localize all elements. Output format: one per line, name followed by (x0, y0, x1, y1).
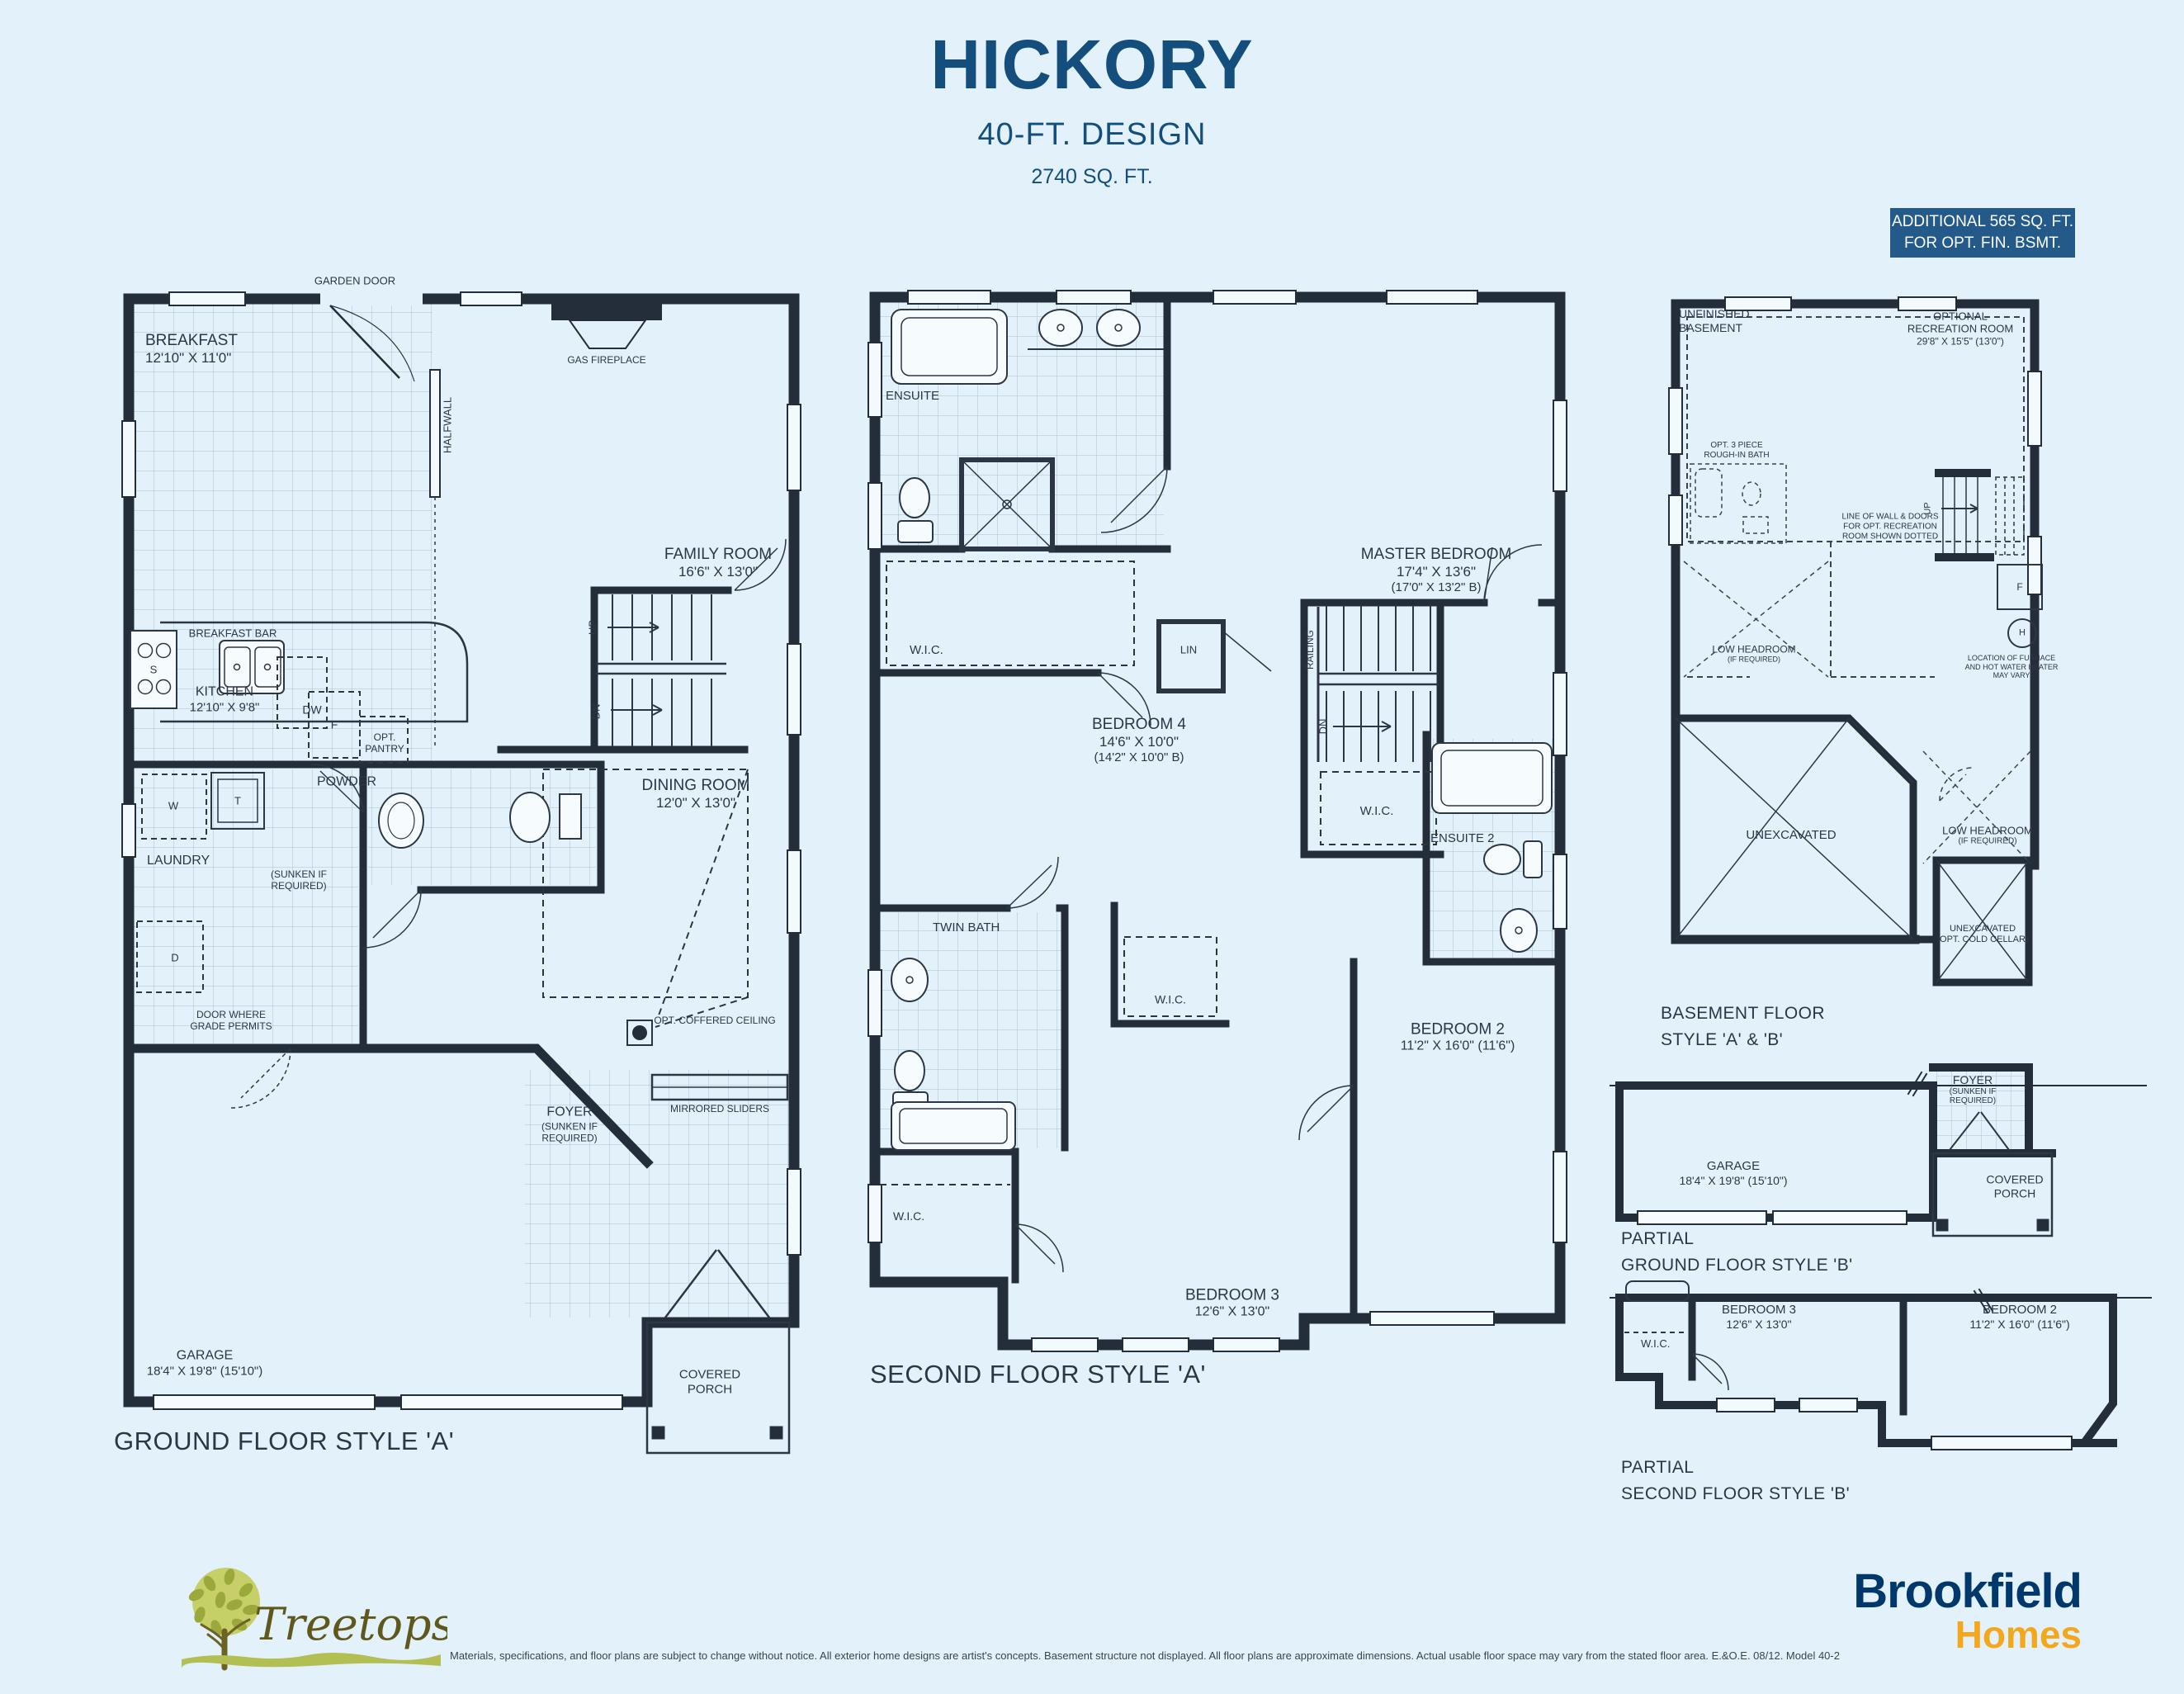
breakfast-bar-label: BREAKFAST BAR (189, 627, 277, 639)
up-label: UP (1923, 502, 1934, 514)
tub-label: T (234, 794, 241, 807)
floorplan-sheet: HICKORY 40-FT. DESIGN 2740 SQ. FT. ADDIT… (0, 0, 2184, 1694)
text-line: (SUNKEN IF (1950, 1086, 1997, 1096)
bedroom4-label: BEDROOM 4 14'6" X 10'0" (14'2" X 10'0" B… (1092, 716, 1186, 765)
room-dims: 12'10" X 9'8" (190, 701, 260, 716)
ground-floor-drawing (74, 272, 900, 1486)
text-line: OPT. 3 PIECE (1704, 441, 1769, 451)
rough-in-bath (1690, 464, 1786, 543)
porch-post-icon (770, 1427, 782, 1439)
page-sqft: 2740 SQ. FT. (0, 165, 2184, 189)
garage-label: GARAGE 18'4" X 19'8" (15'10") (147, 1349, 263, 1379)
ensuite-label: ENSUITE (886, 389, 939, 404)
brookfield-logo: Brookfield Homes (1853, 1567, 2082, 1654)
text-line: STYLE 'A' & 'B' (1661, 1027, 1825, 1053)
laundry-label: LAUNDRY (147, 854, 210, 869)
railing-label: RAILING (1304, 630, 1316, 670)
text-line: DOOR WHERE (190, 1009, 272, 1020)
text-line: AND HOT WATER HEATER (1965, 663, 2059, 672)
twin-bath-label: TWIN BATH (933, 920, 1000, 935)
sink-icon (1039, 310, 1082, 346)
ensuite2-label: ENSUITE 2 (1430, 831, 1495, 846)
room-name: BEDROOM 2 (1401, 1020, 1515, 1039)
low-headroom-label: LOW HEADROOM (IF REQUIRED) (1712, 644, 1795, 665)
garage-doors (1638, 1211, 1907, 1224)
fridge-label: F (331, 718, 338, 732)
master-closet-label: W.I.C. (1360, 804, 1394, 819)
breakfast-label: BREAKFAST 12'10" X 11'0" (145, 332, 238, 367)
text-line: BASEMENT FLOOR (1661, 1001, 1825, 1027)
cooktop-label: S (150, 663, 158, 675)
toilet-icon (510, 793, 550, 842)
treetops-logo: Treetops (175, 1559, 447, 1682)
door-arcs (1007, 466, 1354, 1272)
low-headroom-zones (1684, 561, 2030, 864)
covered-porch-label: COVERED PORCH (679, 1367, 740, 1396)
page-title: HICKORY (0, 25, 2184, 105)
low-headroom2-label: LOW HEADROOM (IF REQUIRED) (1942, 824, 2033, 846)
ground-floor-title: GROUND FLOOR STYLE 'A' (114, 1427, 454, 1457)
text-line: REQUIRED) (271, 880, 327, 892)
partial-second-floor-plan: W.I.C. BEDROOM 3 12'6" X 13'0" BEDROOM 2… (1610, 1280, 2154, 1519)
text-line: COVERED (679, 1367, 740, 1382)
room-dims: 12'0" X 13'0" (642, 795, 750, 812)
room-name: BEDROOM 3 (1185, 1286, 1279, 1304)
text-line: (IF REQUIRED) (1942, 837, 2033, 847)
walls (1610, 1067, 2146, 1218)
bed2-wic-label: W.I.C. (1155, 993, 1186, 1007)
treetops-wordmark: Treetops (254, 1598, 447, 1650)
unfinished-basement-label: UNFINISHED BASEMENT (1679, 307, 1750, 334)
text-line: (SUNKEN IF (541, 1120, 598, 1132)
room-dims: 17'4" X 13'6" (1361, 564, 1512, 580)
toilet-icon (1484, 845, 1520, 874)
tub-icon (1432, 743, 1552, 813)
covered-porch-label: COVERED PORCH (1986, 1172, 2043, 1200)
room-name: GARAGE (147, 1349, 263, 1365)
second-floor-title: SECOND FLOOR STYLE 'A' (870, 1360, 1206, 1390)
dining-room-label: DINING ROOM 12'0" X 13'0" (642, 777, 750, 812)
washer-label: W (168, 799, 178, 812)
tub-icon (891, 310, 1007, 384)
family-room-label: FAMILY ROOM 16'6" X 13'0" (664, 546, 772, 580)
basement-floor-plan: UNFINISHED BASEMENT OPTIONAL RECREATION … (1651, 289, 2130, 1065)
room-name: BEDROOM 3 (1722, 1303, 1796, 1318)
partial-second-title: PARTIAL SECOND FLOOR STYLE 'B' (1621, 1455, 1850, 1507)
sink-icon (1097, 310, 1140, 346)
optional-rec-room-label: OPTIONAL RECREATION ROOM 29'8" X 15'5" (… (1907, 310, 2013, 348)
text-line: REQUIRED) (1950, 1096, 1997, 1106)
room-name: FAMILY ROOM (664, 546, 772, 564)
laundry-sunken-label: (SUNKEN IF REQUIRED) (271, 868, 327, 892)
badge-line2: FOR OPT. FIN. BSMT. (1904, 233, 2061, 254)
text-line: OPTIONAL (1907, 310, 2013, 323)
text-line: PORCH (679, 1382, 740, 1397)
text-line: SECOND FLOOR STYLE 'B' (1621, 1481, 1850, 1507)
second-floor-drawing (858, 277, 1585, 1416)
porch-post-icon (652, 1427, 664, 1439)
text-line: 29'8" X 15'5" (13'0") (1907, 335, 2013, 347)
wic-label: W.I.C. (1641, 1337, 1670, 1350)
room-dims: 18'4" X 19'8" (15'10") (1679, 1174, 1787, 1188)
cold-cellar-label: UNEXCAVATED (OPT. COLD CELLAR) (1936, 924, 2028, 945)
text-line: GROUND FLOOR STYLE 'B' (1621, 1252, 1853, 1279)
dryer-label: D (171, 951, 178, 963)
room-dims: 12'6" X 13'0" (1185, 1305, 1279, 1321)
powder-label: POWDER (317, 775, 376, 791)
porch-post-icon (1936, 1219, 1948, 1231)
ground-floor-plan: GARDEN DOOR BREAKFAST 12'10" X 11'0" GAS… (74, 272, 900, 1486)
text-line: BASEMENT (1679, 321, 1750, 335)
bed3-wic-label: W.I.C. (893, 1209, 924, 1223)
up-label: UP (586, 620, 598, 635)
tub-icon (1695, 469, 1722, 517)
text-line: ROOM SHOWN DOTTED (1841, 532, 1938, 542)
text-line: PORCH (1986, 1186, 2043, 1200)
opt-pantry-label: OPT. PANTRY (365, 731, 404, 755)
sink-icon (1743, 517, 1768, 533)
room-dims: 16'6" X 13'0" (664, 564, 772, 580)
text-line: LOCATION OF FURNACE (1965, 654, 2059, 663)
bedroom2-label: BEDROOM 2 11'2" X 16'0" (11'6") (1969, 1303, 2069, 1331)
text-line: MAY VARY (1965, 671, 2059, 680)
room-dims: 14'6" X 10'0" (1092, 734, 1186, 750)
furnace-note-label: LOCATION OF FURNACE AND HOT WATER HEATER… (1965, 654, 2059, 680)
room-name: KITCHEN (190, 685, 260, 701)
coffered-label: OPT. COFFERED CEILING (654, 1015, 775, 1026)
room-name: GARAGE (1679, 1159, 1787, 1174)
text-line: PARTIAL (1621, 1455, 1850, 1481)
text-line: FOYER (1950, 1073, 1997, 1087)
text-line: FOR OPT. RECREATION (1841, 522, 1938, 532)
room-name: BEDROOM 4 (1092, 716, 1186, 734)
text-line: (SUNKEN IF (271, 868, 327, 880)
second-floor-plan: ENSUITE W.I.C. LIN MASTER BEDROOM 17'4" … (858, 277, 1585, 1416)
text-line: LOW HEADROOM (1942, 824, 2033, 836)
linen-closet (1159, 622, 1223, 691)
unexcavated-label: UNEXCAVATED (1746, 828, 1836, 843)
linen-label: LIN (1180, 643, 1197, 655)
dishwasher-label: DW (302, 703, 321, 717)
bedroom3-label: BEDROOM 3 12'6" X 13'0" (1722, 1303, 1796, 1331)
room-name: MASTER BEDROOM (1361, 546, 1512, 564)
room-dims: 11'2" X 16'0" (11'6") (1969, 1318, 2069, 1332)
text-line: UNFINISHED (1679, 307, 1750, 321)
room-dims: 12'10" X 11'0" (145, 350, 238, 367)
text-line: COVERED (1986, 1172, 2043, 1186)
treetops-logo-drawing: Treetops (175, 1559, 447, 1682)
partial-ground-floor-plan: FOYER (SUNKEN IF REQUIRED) GARAGE 18'4" … (1610, 1061, 2154, 1284)
gas-fireplace-label: GAS FIREPLACE (567, 354, 645, 366)
text-line: UNEXCAVATED (1936, 924, 2028, 935)
foyer-label: FOYER (SUNKEN IF REQUIRED) (541, 1105, 598, 1143)
text-line: (OPT. COLD CELLAR) (1936, 935, 2028, 945)
garden-door-label: GARDEN DOOR (314, 274, 395, 286)
gas-fireplace-icon (551, 294, 662, 348)
disclaimer-text: Materials, specifications, and floor pla… (450, 1649, 1997, 1662)
room-name: BEDROOM 2 (1969, 1303, 2069, 1318)
bedroom3-label: BEDROOM 3 12'6" X 13'0" (1185, 1286, 1279, 1320)
porch-post-icon (2037, 1219, 2049, 1231)
sink-icon (1501, 909, 1537, 952)
tree-icon (187, 1568, 260, 1668)
basement-title: BASEMENT FLOOR STYLE 'A' & 'B' (1661, 1001, 1825, 1053)
room-dims-alt: (17'0" X 13'2" B) (1361, 580, 1512, 595)
brookfield-wordmark: Brookfield (1853, 1567, 2082, 1616)
text-line: PANTRY (365, 743, 404, 755)
rough-in-bath-label: OPT. 3 PIECE ROUGH-IN BATH (1704, 441, 1769, 461)
room-dims-alt: (14'2" X 10'0" B) (1092, 750, 1186, 765)
text-line: RECREATION ROOM (1907, 323, 2013, 335)
furnace-letter: F (2016, 581, 2022, 593)
garage-label: GARAGE 18'4" X 19'8" (15'10") (1679, 1159, 1787, 1187)
optional-rec-room-outline (1687, 317, 2024, 677)
text-line: (IF REQUIRED) (1712, 655, 1795, 665)
text-line: LOW HEADROOM (1712, 644, 1795, 655)
master-bedroom-label: MASTER BEDROOM 17'4" X 13'6" (17'0" X 13… (1361, 546, 1512, 595)
text-line: REQUIRED) (541, 1132, 598, 1143)
mirrored-sliders-label: MIRRORED SLIDERS (670, 1103, 769, 1114)
room-dims: 12'6" X 13'0" (1722, 1318, 1796, 1332)
page-subtitle: 40-FT. DESIGN (0, 117, 2184, 153)
toilet-icon (900, 478, 929, 518)
room-dims: 18'4" X 19'8" (15'10") (147, 1365, 263, 1379)
grass-icon (182, 1653, 441, 1668)
text-line: OPT. (365, 731, 404, 743)
master-wic-label: W.I.C. (910, 643, 943, 658)
sink-icon (891, 958, 928, 1001)
heater-letter: H (2019, 628, 2026, 639)
room-name: DINING ROOM (642, 777, 750, 795)
text-line: PARTIAL (1621, 1226, 1853, 1252)
partial-ground-title: PARTIAL GROUND FLOOR STYLE 'B' (1621, 1226, 1853, 1278)
text-line: GRADE PERMITS (190, 1020, 272, 1032)
stairs (1935, 469, 2024, 561)
room-dims: 11'2" X 16'0" (11'6") (1401, 1039, 1515, 1055)
room-name: FOYER (541, 1105, 598, 1120)
optional-basement-badge: ADDITIONAL 565 SQ. FT. FOR OPT. FIN. BSM… (1890, 208, 2075, 258)
room-name: BREAKFAST (145, 332, 238, 350)
kitchen-label: KITCHEN 12'10" X 9'8" (190, 685, 260, 716)
door-grade-label: DOOR WHERE GRADE PERMITS (190, 1009, 272, 1032)
toilet-icon (895, 1051, 924, 1091)
toilet-icon (1742, 482, 1761, 505)
foyer-label: FOYER (SUNKEN IF REQUIRED) (1950, 1073, 1997, 1106)
badge-line1: ADDITIONAL 565 SQ. FT. (1892, 211, 2073, 233)
bedroom2-label: BEDROOM 2 11'2" X 16'0" (11'6") (1401, 1020, 1515, 1054)
dn-label: DN (589, 704, 602, 720)
dn-label: DN (1317, 719, 1329, 735)
halfwall-label: HALFWALL (441, 397, 453, 453)
text-line: ROUGH-IN BATH (1704, 451, 1769, 461)
line-of-wall-label: LINE OF WALL & DOORS FOR OPT. RECREATION… (1841, 512, 1938, 541)
